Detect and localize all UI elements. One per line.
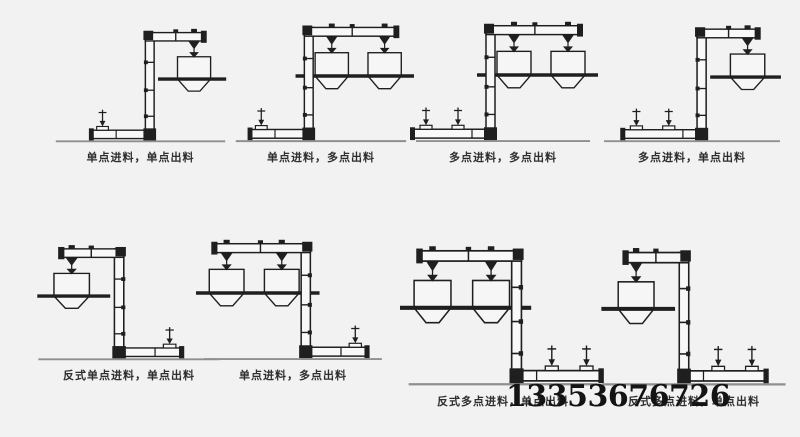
feed-inlet: [97, 110, 109, 130]
feed-inlet: [420, 108, 432, 130]
elevator-svg: [228, 8, 414, 146]
elevator-diagram-1: 单点进料，单点出料: [48, 14, 233, 165]
feed-section: [620, 109, 708, 141]
feed-inlet: [452, 108, 464, 130]
elevator-svg: [408, 6, 598, 146]
elevator-svg: [48, 14, 233, 146]
elevator-svg: [594, 230, 794, 390]
feed-inlet: [746, 346, 759, 371]
elevator-diagram-6: 单点进料，多点出料: [196, 224, 390, 383]
feed-inlet: [663, 109, 675, 130]
elevator-diagram-3: 多点进料，多点出料: [408, 6, 598, 165]
elevator-diagram-4: 多点进料，单点出料: [596, 10, 788, 165]
feed-inlet: [580, 346, 593, 371]
diagram-canvas: 单点进料，单点出料 单点进料，多点出料 多点进料，多点出料 多点进料，单点出料 …: [0, 0, 800, 437]
elevator-svg: [596, 10, 788, 146]
feed-section: [677, 346, 769, 383]
diagram-caption: 单点进料，多点出料: [228, 149, 414, 165]
elevator-drawing: [408, 6, 598, 146]
feed-inlet: [255, 108, 267, 129]
discharge-hoppers: [209, 260, 299, 305]
elevator-diagram-2: 单点进料，多点出料: [228, 8, 414, 165]
elevator-drawing: [594, 230, 794, 390]
elevator-svg: [400, 228, 606, 390]
discharge-hoppers: [730, 45, 764, 89]
elevator-drawing: [48, 14, 233, 146]
diagram-caption: 多点进料，多点出料: [408, 149, 598, 165]
elevator-drawing: [196, 224, 390, 364]
diagram-caption: 单点进料，多点出料: [196, 367, 390, 383]
diagram-caption: 多点进料，单点出料: [596, 149, 788, 165]
feed-inlet: [349, 326, 361, 348]
feed-inlet: [163, 327, 176, 348]
discharge-hoppers: [414, 270, 509, 322]
discharge-hoppers: [54, 265, 89, 308]
discharge-hoppers: [497, 42, 585, 87]
elevator-drawing: [596, 10, 788, 146]
diagram-caption: 单点进料，单点出料: [48, 149, 233, 165]
feed-inlet: [545, 346, 558, 371]
feed-inlet: [712, 346, 725, 371]
discharge-hoppers: [618, 272, 654, 324]
phone-number: 13353676726: [506, 379, 730, 414]
feed-section: [510, 346, 604, 384]
elevator-drawing: [400, 228, 606, 390]
discharge-hoppers: [178, 48, 211, 91]
feed-inlet: [630, 109, 642, 130]
elevator-svg: [196, 224, 390, 364]
feed-section: [410, 108, 497, 141]
discharge-hoppers: [315, 44, 401, 89]
elevator-drawing: [228, 8, 414, 146]
